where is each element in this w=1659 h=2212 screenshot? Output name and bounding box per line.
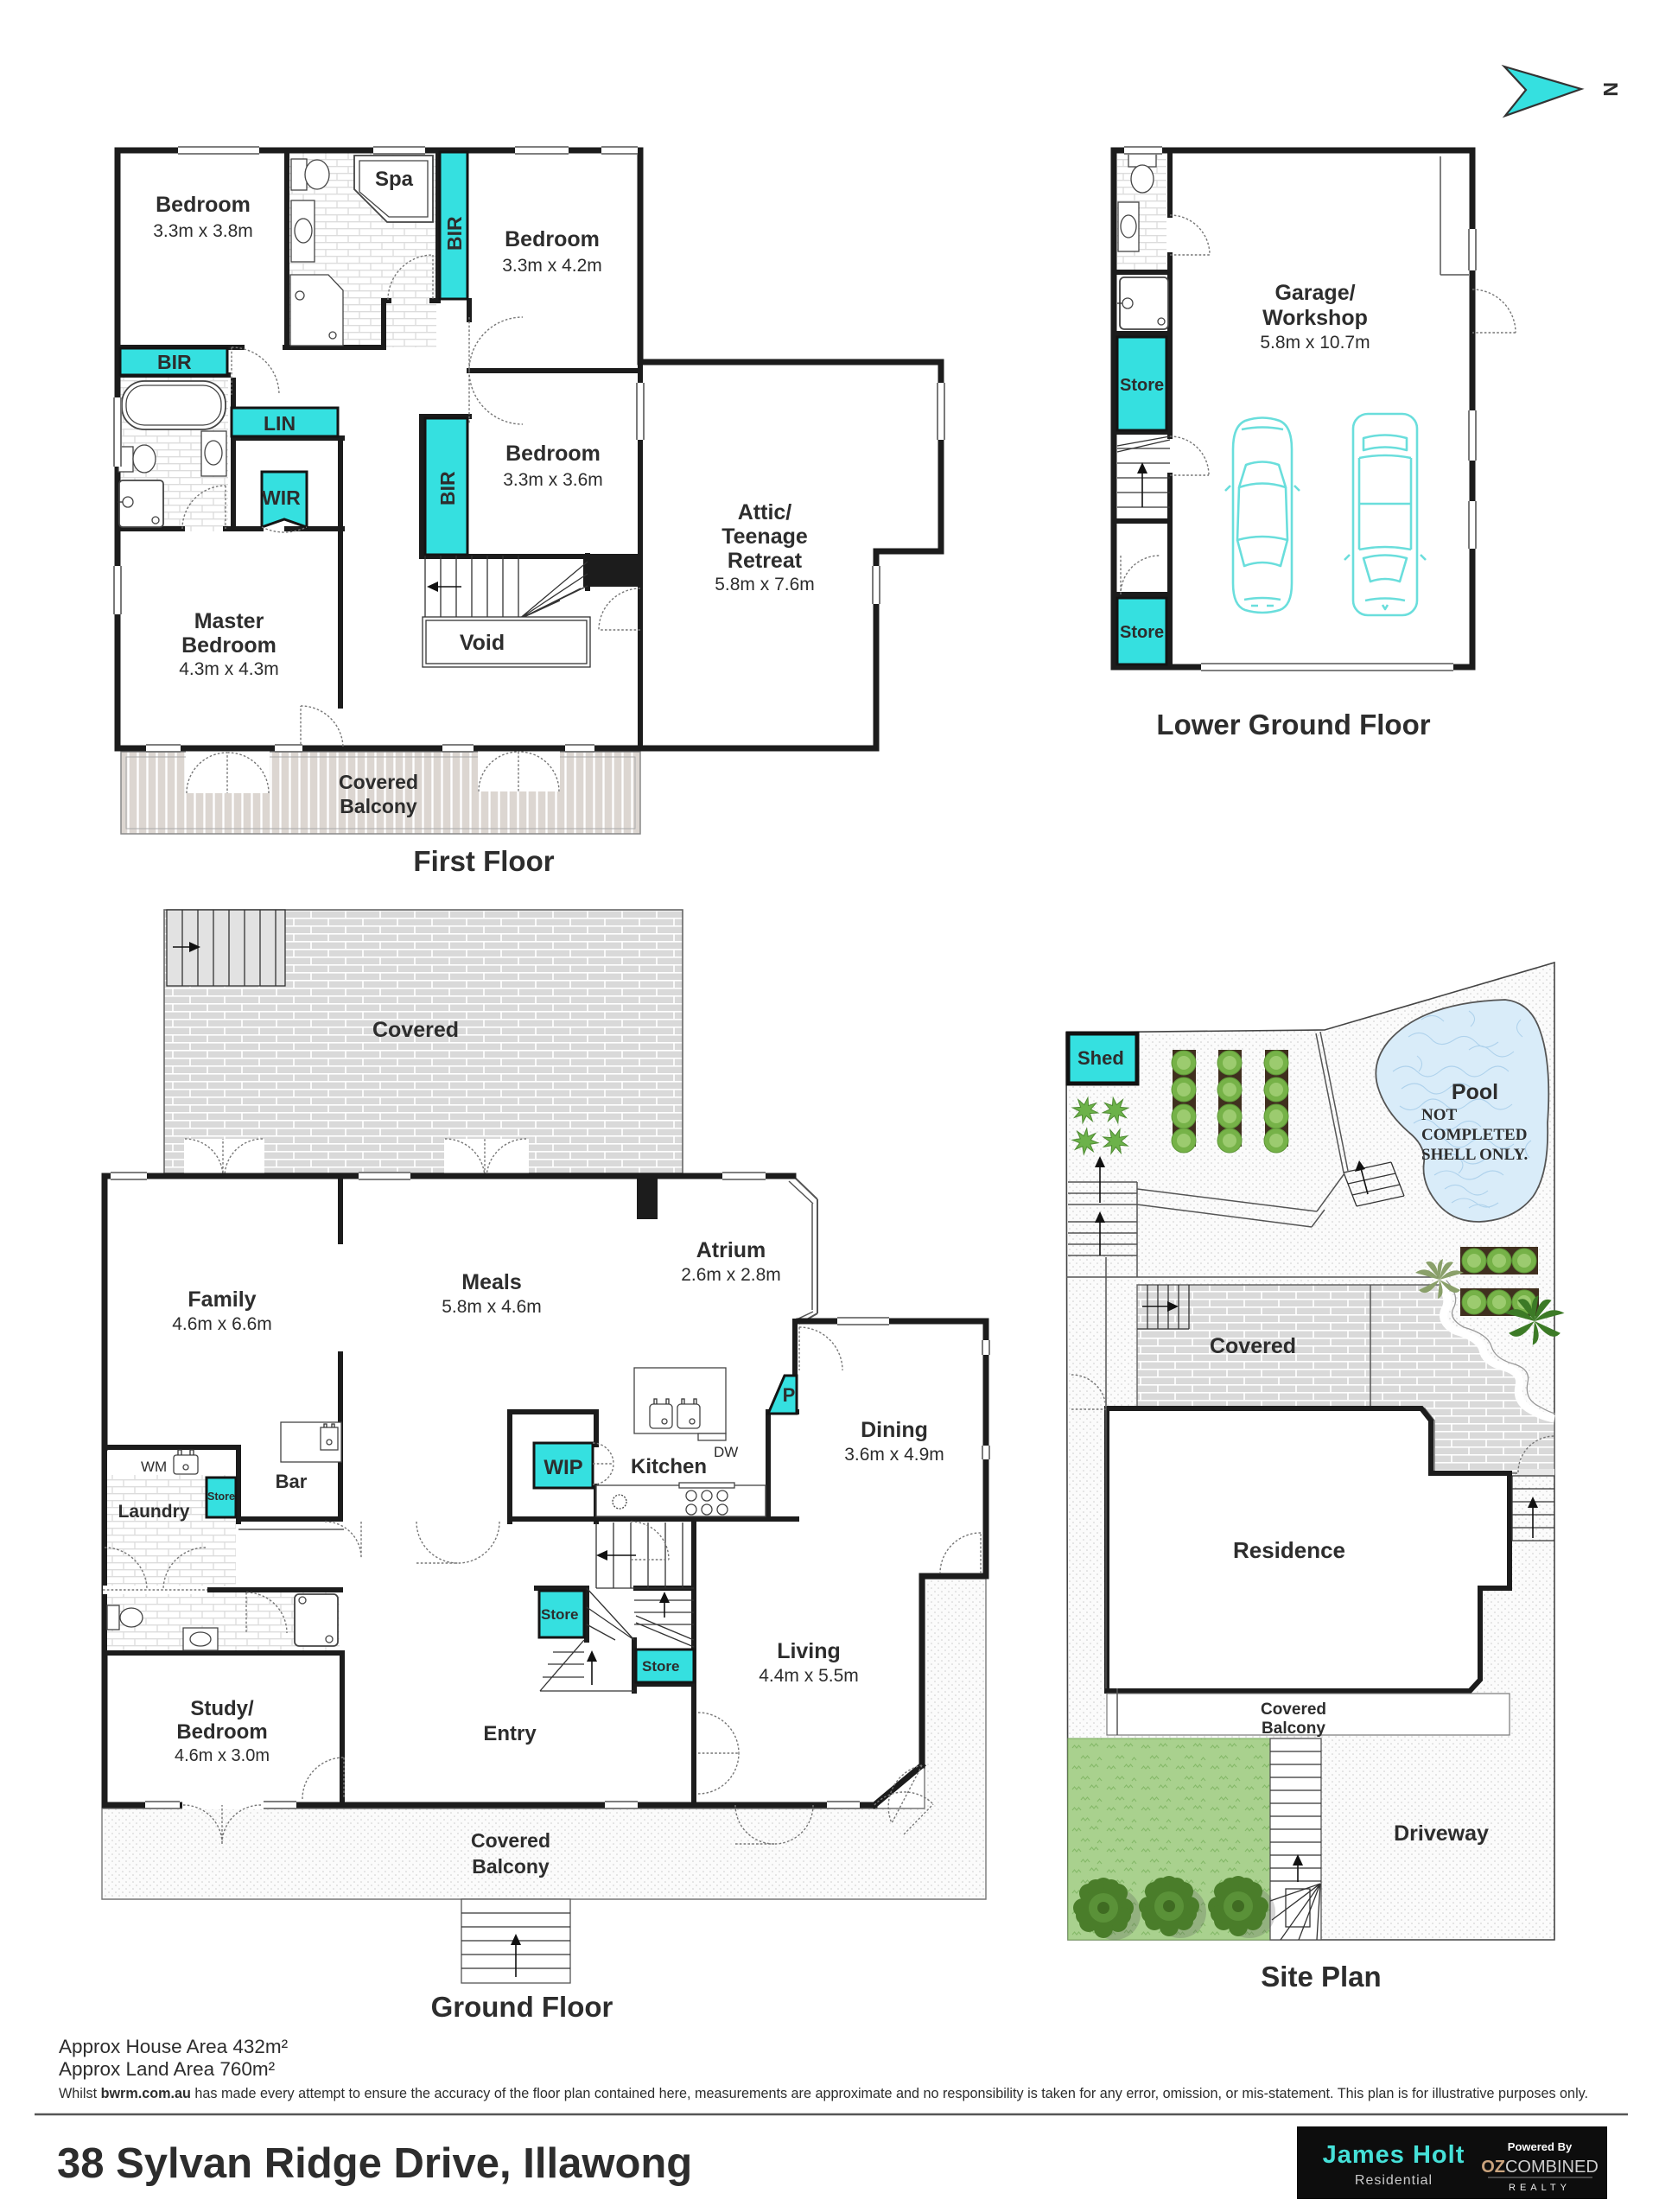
svg-text:Workshop: Workshop xyxy=(1262,306,1368,330)
svg-text:Teenage: Teenage xyxy=(721,524,808,549)
svg-text:Shed: Shed xyxy=(1077,1047,1124,1069)
svg-text:3.6m x 4.9m: 3.6m x 4.9m xyxy=(844,1445,944,1465)
svg-text:James Holt: James Holt xyxy=(1323,2141,1465,2169)
svg-text:Store: Store xyxy=(1120,623,1164,642)
svg-text:LIN: LIN xyxy=(264,412,296,435)
svg-text:Dining: Dining xyxy=(861,1418,928,1442)
svg-text:Laundry: Laundry xyxy=(118,1502,190,1522)
svg-text:5.8m x 7.6m: 5.8m x 7.6m xyxy=(715,575,815,594)
svg-text:Approx Land Area 760m²: Approx Land Area 760m² xyxy=(59,2058,276,2080)
svg-text:First Floor: First Floor xyxy=(413,845,554,877)
svg-text:Whilst bwrm.com.au has made ev: Whilst bwrm.com.au has made every attemp… xyxy=(59,2086,1588,2101)
svg-text:Pool: Pool xyxy=(1452,1080,1498,1104)
svg-text:4.6m x 6.6m: 4.6m x 6.6m xyxy=(172,1314,272,1334)
svg-text:Balcony: Balcony xyxy=(340,795,417,817)
svg-text:Entry: Entry xyxy=(483,1722,537,1745)
svg-text:Family: Family xyxy=(188,1287,256,1312)
svg-text:5.8m x 4.6m: 5.8m x 4.6m xyxy=(442,1297,542,1317)
svg-text:OZCOMBINED: OZCOMBINED xyxy=(1481,2158,1599,2177)
svg-text:BIR: BIR xyxy=(436,471,459,505)
svg-text:N: N xyxy=(1599,82,1622,97)
svg-text:Covered: Covered xyxy=(471,1829,550,1852)
svg-text:3.3m x 4.2m: 3.3m x 4.2m xyxy=(502,256,602,276)
svg-text:5.8m x 10.7m: 5.8m x 10.7m xyxy=(1260,333,1370,353)
svg-text:Covered: Covered xyxy=(1261,1700,1326,1719)
svg-text:SHELL ONLY.: SHELL ONLY. xyxy=(1421,1146,1528,1164)
svg-text:Residential: Residential xyxy=(1355,2173,1433,2188)
svg-text:NOT: NOT xyxy=(1421,1106,1458,1124)
svg-text:BIR: BIR xyxy=(157,351,192,373)
svg-text:Garage/: Garage/ xyxy=(1274,281,1355,305)
svg-text:WIR: WIR xyxy=(262,486,301,509)
svg-text:Meals: Meals xyxy=(461,1270,521,1294)
svg-text:Bedroom: Bedroom xyxy=(505,442,601,466)
svg-text:Covered: Covered xyxy=(1210,1334,1296,1358)
svg-text:P: P xyxy=(783,1384,796,1406)
svg-text:WIP: WIP xyxy=(543,1456,582,1479)
svg-text:DW: DW xyxy=(714,1444,738,1460)
svg-text:REALTY: REALTY xyxy=(1509,2183,1571,2193)
svg-text:Kitchen: Kitchen xyxy=(631,1455,707,1478)
svg-text:Site Plan: Site Plan xyxy=(1261,1961,1381,1993)
svg-text:Void: Void xyxy=(460,631,505,655)
svg-text:Store: Store xyxy=(541,1606,578,1623)
svg-text:COMPLETED: COMPLETED xyxy=(1421,1126,1527,1144)
svg-text:Retreat: Retreat xyxy=(728,549,803,573)
svg-text:Powered By: Powered By xyxy=(1508,2140,1573,2153)
svg-text:4.4m x 5.5m: 4.4m x 5.5m xyxy=(759,1666,859,1686)
svg-text:4.6m x 3.0m: 4.6m x 3.0m xyxy=(175,1746,270,1765)
svg-text:BIR: BIR xyxy=(443,216,466,251)
svg-text:3.3m x 3.8m: 3.3m x 3.8m xyxy=(153,221,253,241)
svg-text:Covered: Covered xyxy=(372,1018,459,1042)
svg-text:Approx House Area 432m²: Approx House Area 432m² xyxy=(59,2036,289,2057)
svg-text:4.3m x 4.3m: 4.3m x 4.3m xyxy=(179,659,279,679)
svg-text:Atrium: Atrium xyxy=(696,1238,766,1262)
svg-text:Store: Store xyxy=(207,1491,235,1503)
svg-text:Attic/: Attic/ xyxy=(738,500,792,524)
svg-text:Bedroom: Bedroom xyxy=(181,633,276,658)
svg-text:2.6m x 2.8m: 2.6m x 2.8m xyxy=(681,1265,781,1285)
svg-text:Ground Floor: Ground Floor xyxy=(431,1991,613,2023)
svg-text:Lower Ground Floor: Lower Ground Floor xyxy=(1156,709,1430,741)
svg-text:Store: Store xyxy=(642,1658,679,1675)
svg-text:Residence: Residence xyxy=(1233,1537,1345,1563)
svg-text:WM: WM xyxy=(141,1459,167,1475)
svg-text:Balcony: Balcony xyxy=(1262,1719,1325,1738)
svg-text:Living: Living xyxy=(777,1639,841,1663)
svg-text:Spa: Spa xyxy=(375,168,414,191)
svg-text:Master: Master xyxy=(194,609,264,633)
svg-text:Driveway: Driveway xyxy=(1394,1821,1489,1846)
svg-text:Bar: Bar xyxy=(276,1471,308,1492)
svg-text:3.3m x 3.6m: 3.3m x 3.6m xyxy=(503,470,603,490)
svg-text:Bedroom: Bedroom xyxy=(156,193,251,217)
svg-text:Study/: Study/ xyxy=(190,1697,254,1720)
svg-text:Balcony: Balcony xyxy=(472,1855,550,1878)
svg-text:38 Sylvan Ridge Drive, Illawon: 38 Sylvan Ridge Drive, Illawong xyxy=(57,2140,692,2187)
svg-text:Bedroom: Bedroom xyxy=(176,1720,267,1744)
svg-text:Store: Store xyxy=(1120,376,1164,395)
svg-text:Covered: Covered xyxy=(339,771,418,793)
svg-text:Bedroom: Bedroom xyxy=(505,227,600,251)
